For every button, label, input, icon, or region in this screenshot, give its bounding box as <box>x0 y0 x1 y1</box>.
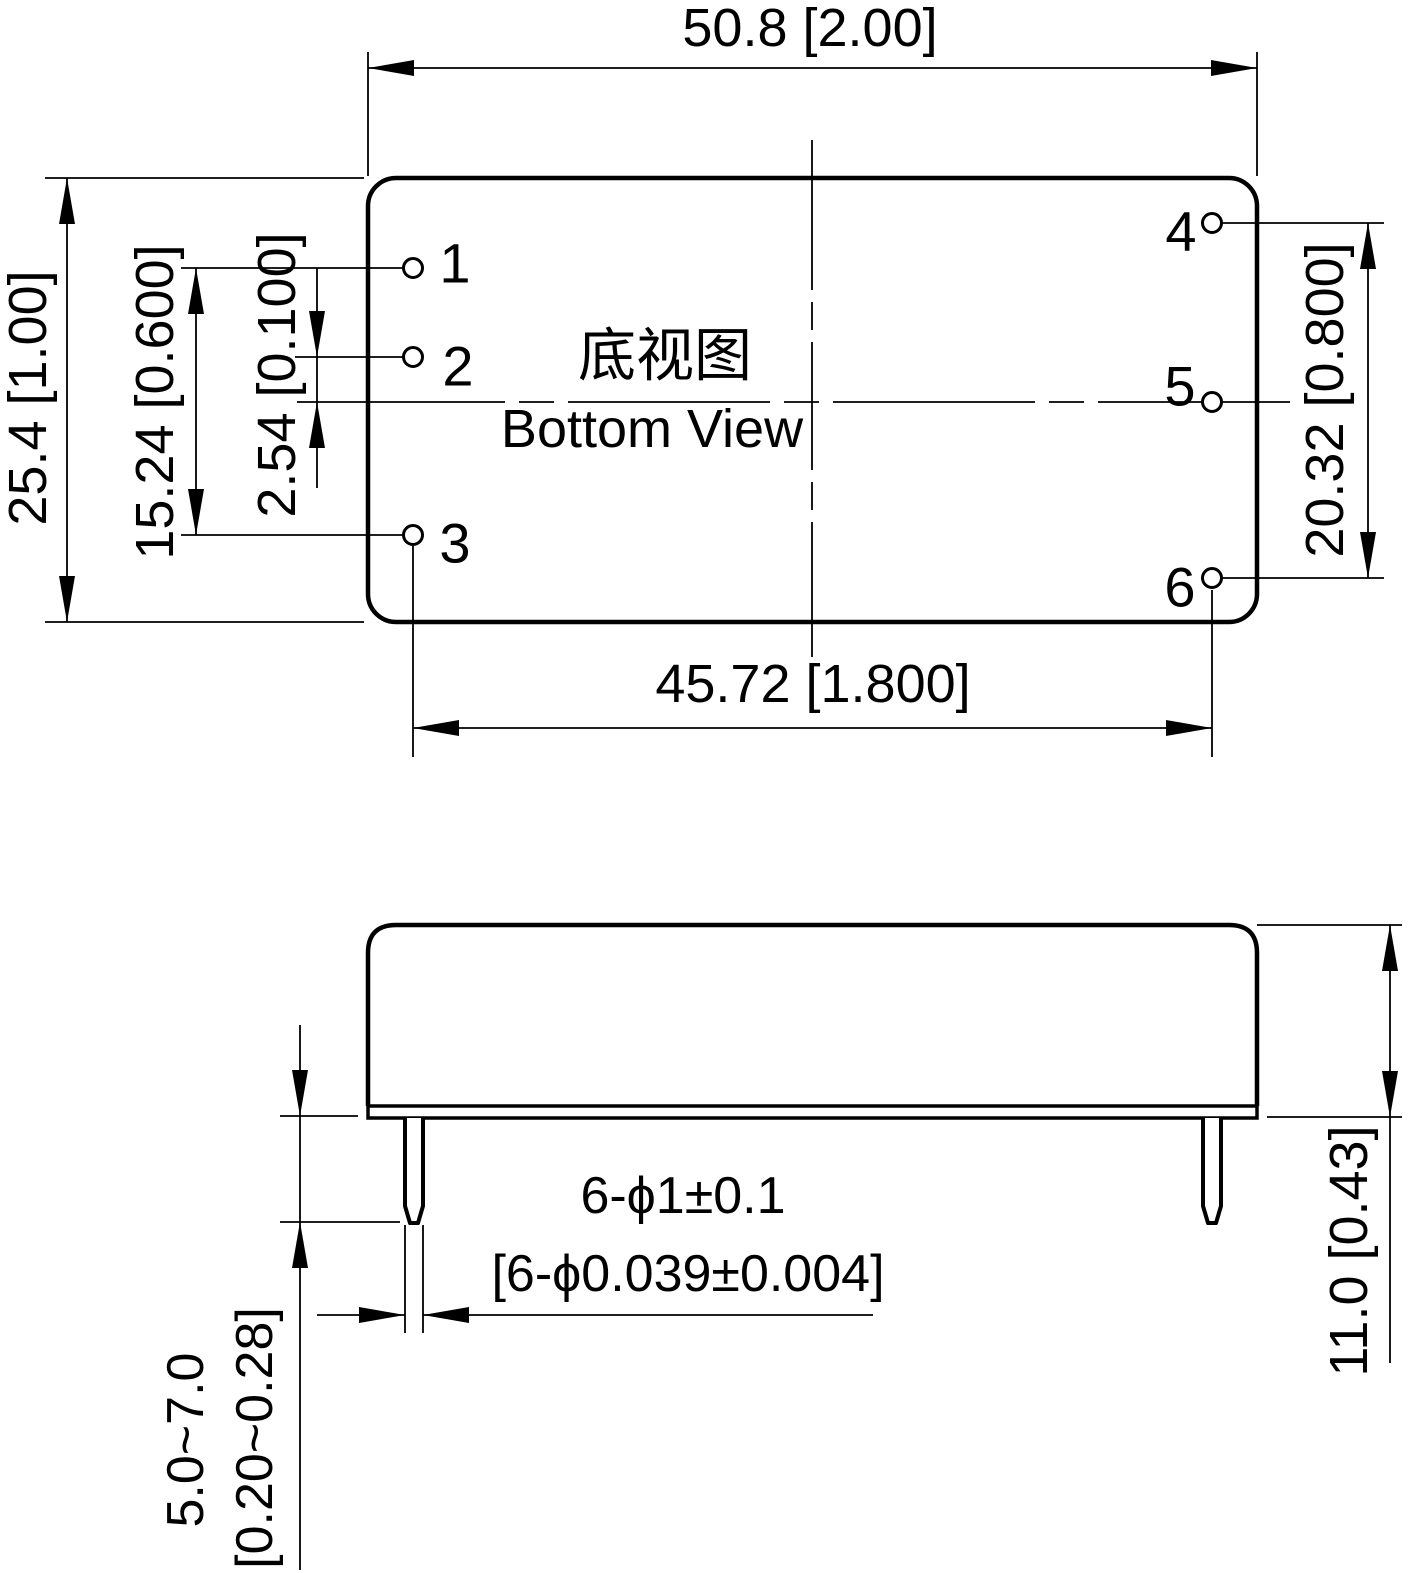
pin-2-label: 2 <box>442 335 473 398</box>
dim-left-pin-span-label: 15.24 [0.600] <box>125 244 185 559</box>
dim-overall-width-label: 50.8 [2.00] <box>682 0 937 58</box>
pin-6-label: 6 <box>1164 556 1195 619</box>
pin-3-hole <box>404 526 423 545</box>
pin-5-label: 5 <box>1164 355 1195 418</box>
pin-3-label: 3 <box>439 512 470 575</box>
view-title-english: Bottom View <box>501 399 804 459</box>
left-pin <box>405 1118 423 1223</box>
dim-right-pin-span-label: 20.32 [0.800] <box>1295 242 1355 557</box>
dim-pin2-offset-label: 2.54 [0.100] <box>247 232 307 517</box>
pin-5-hole <box>1203 393 1222 412</box>
view-title-chinese: 底视图 <box>578 324 752 389</box>
case-base-flange <box>368 1106 1257 1118</box>
pin-1-label: 1 <box>439 232 470 295</box>
pin-6-hole <box>1203 569 1222 588</box>
pin-1-hole <box>404 259 423 278</box>
pin-2-hole <box>404 348 423 367</box>
dim-case-height-label: 11.0 [0.43] <box>1319 1125 1379 1376</box>
dim-pin-diameter-inch-label: [6-ϕ0.039±0.004] <box>491 1245 884 1303</box>
pin-4-label: 4 <box>1165 200 1196 263</box>
technical-drawing: 50.8 [2.00] 25.4 [1.00] 15.24 [0.600] 2.… <box>0 0 1414 1573</box>
dim-pin-column-span-label: 45.72 [1.800] <box>655 654 970 714</box>
right-pin <box>1203 1118 1221 1223</box>
dim-pin-length-inch-label: [0.20~0.28] <box>226 1307 284 1569</box>
dim-pin-length-mm-label: 5.0~7.0 <box>157 1353 215 1528</box>
dim-overall-height-label: 25.4 [1.00] <box>0 270 58 525</box>
dim-pin-diameter-mm-label: 6-ϕ1±0.1 <box>580 1167 785 1225</box>
pin-4-hole <box>1203 214 1222 233</box>
case-body-outline <box>368 925 1257 1106</box>
